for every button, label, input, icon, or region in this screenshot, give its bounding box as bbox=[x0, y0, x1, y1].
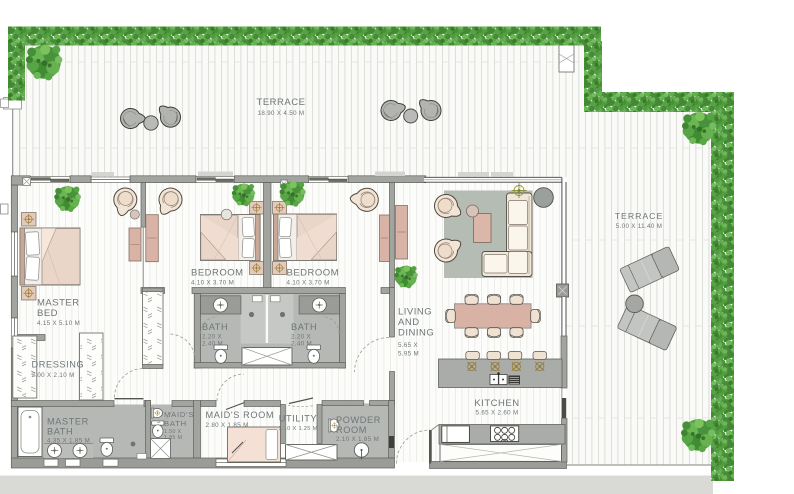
svg-text:POWDER: POWDER bbox=[336, 415, 381, 425]
svg-text:MASTER: MASTER bbox=[37, 298, 80, 309]
svg-text:DINING: DINING bbox=[398, 328, 434, 339]
svg-text:2.80 X 1.85 M: 2.80 X 1.85 M bbox=[206, 422, 249, 429]
svg-text:KITCHEN: KITCHEN bbox=[474, 398, 519, 409]
svg-text:LIVING: LIVING bbox=[398, 307, 432, 318]
svg-text:BEDROOM: BEDROOM bbox=[287, 268, 340, 279]
svg-text:5.00 X 11.40 M: 5.00 X 11.40 M bbox=[616, 223, 662, 230]
svg-text:AND: AND bbox=[398, 317, 420, 328]
svg-text:2.10 X 1.85 M: 2.10 X 1.85 M bbox=[336, 436, 379, 443]
svg-text:4.10 X 3.70 M: 4.10 X 3.70 M bbox=[191, 280, 234, 287]
svg-text:5.95 M: 5.95 M bbox=[398, 351, 419, 358]
svg-text:UTILITY: UTILITY bbox=[279, 414, 317, 424]
svg-text:4.35 X 1.85 M: 4.35 X 1.85 M bbox=[47, 438, 90, 445]
svg-text:2.20 X: 2.20 X bbox=[291, 334, 311, 341]
svg-text:2.40 M: 2.40 M bbox=[202, 341, 223, 348]
svg-text:MAID'S ROOM: MAID'S ROOM bbox=[206, 410, 275, 420]
svg-text:5.65 X: 5.65 X bbox=[398, 342, 418, 349]
svg-text:1.10 X 1.25 M: 1.10 X 1.25 M bbox=[278, 426, 317, 432]
svg-text:MASTER: MASTER bbox=[47, 417, 89, 427]
svg-text:2.00 X 2.10 M: 2.00 X 2.10 M bbox=[32, 372, 75, 379]
svg-text:1.85 M: 1.85 M bbox=[164, 435, 182, 441]
svg-text:BATH: BATH bbox=[291, 322, 317, 332]
svg-text:18.90 X 4.50 M: 18.90 X 4.50 M bbox=[258, 110, 305, 117]
svg-text:ROOM: ROOM bbox=[336, 425, 367, 435]
svg-text:5.65 X 2.60 M: 5.65 X 2.60 M bbox=[475, 410, 518, 417]
svg-text:2.20 X: 2.20 X bbox=[202, 334, 222, 341]
svg-text:BATH: BATH bbox=[164, 419, 187, 428]
svg-text:DRESSING: DRESSING bbox=[32, 360, 85, 370]
svg-text:BATH: BATH bbox=[47, 427, 73, 437]
svg-text:BED: BED bbox=[37, 308, 58, 319]
svg-text:BATH: BATH bbox=[202, 322, 228, 332]
svg-text:TERRACE: TERRACE bbox=[257, 97, 306, 108]
svg-text:BEDROOM: BEDROOM bbox=[191, 268, 244, 279]
svg-text:2.40 M: 2.40 M bbox=[291, 341, 312, 348]
svg-text:MAID'S: MAID'S bbox=[164, 410, 194, 419]
svg-text:4.15 X 5.10 M: 4.15 X 5.10 M bbox=[37, 320, 80, 327]
svg-text:TERRACE: TERRACE bbox=[615, 211, 664, 221]
svg-text:4.10 X 3.70 M: 4.10 X 3.70 M bbox=[287, 280, 330, 287]
